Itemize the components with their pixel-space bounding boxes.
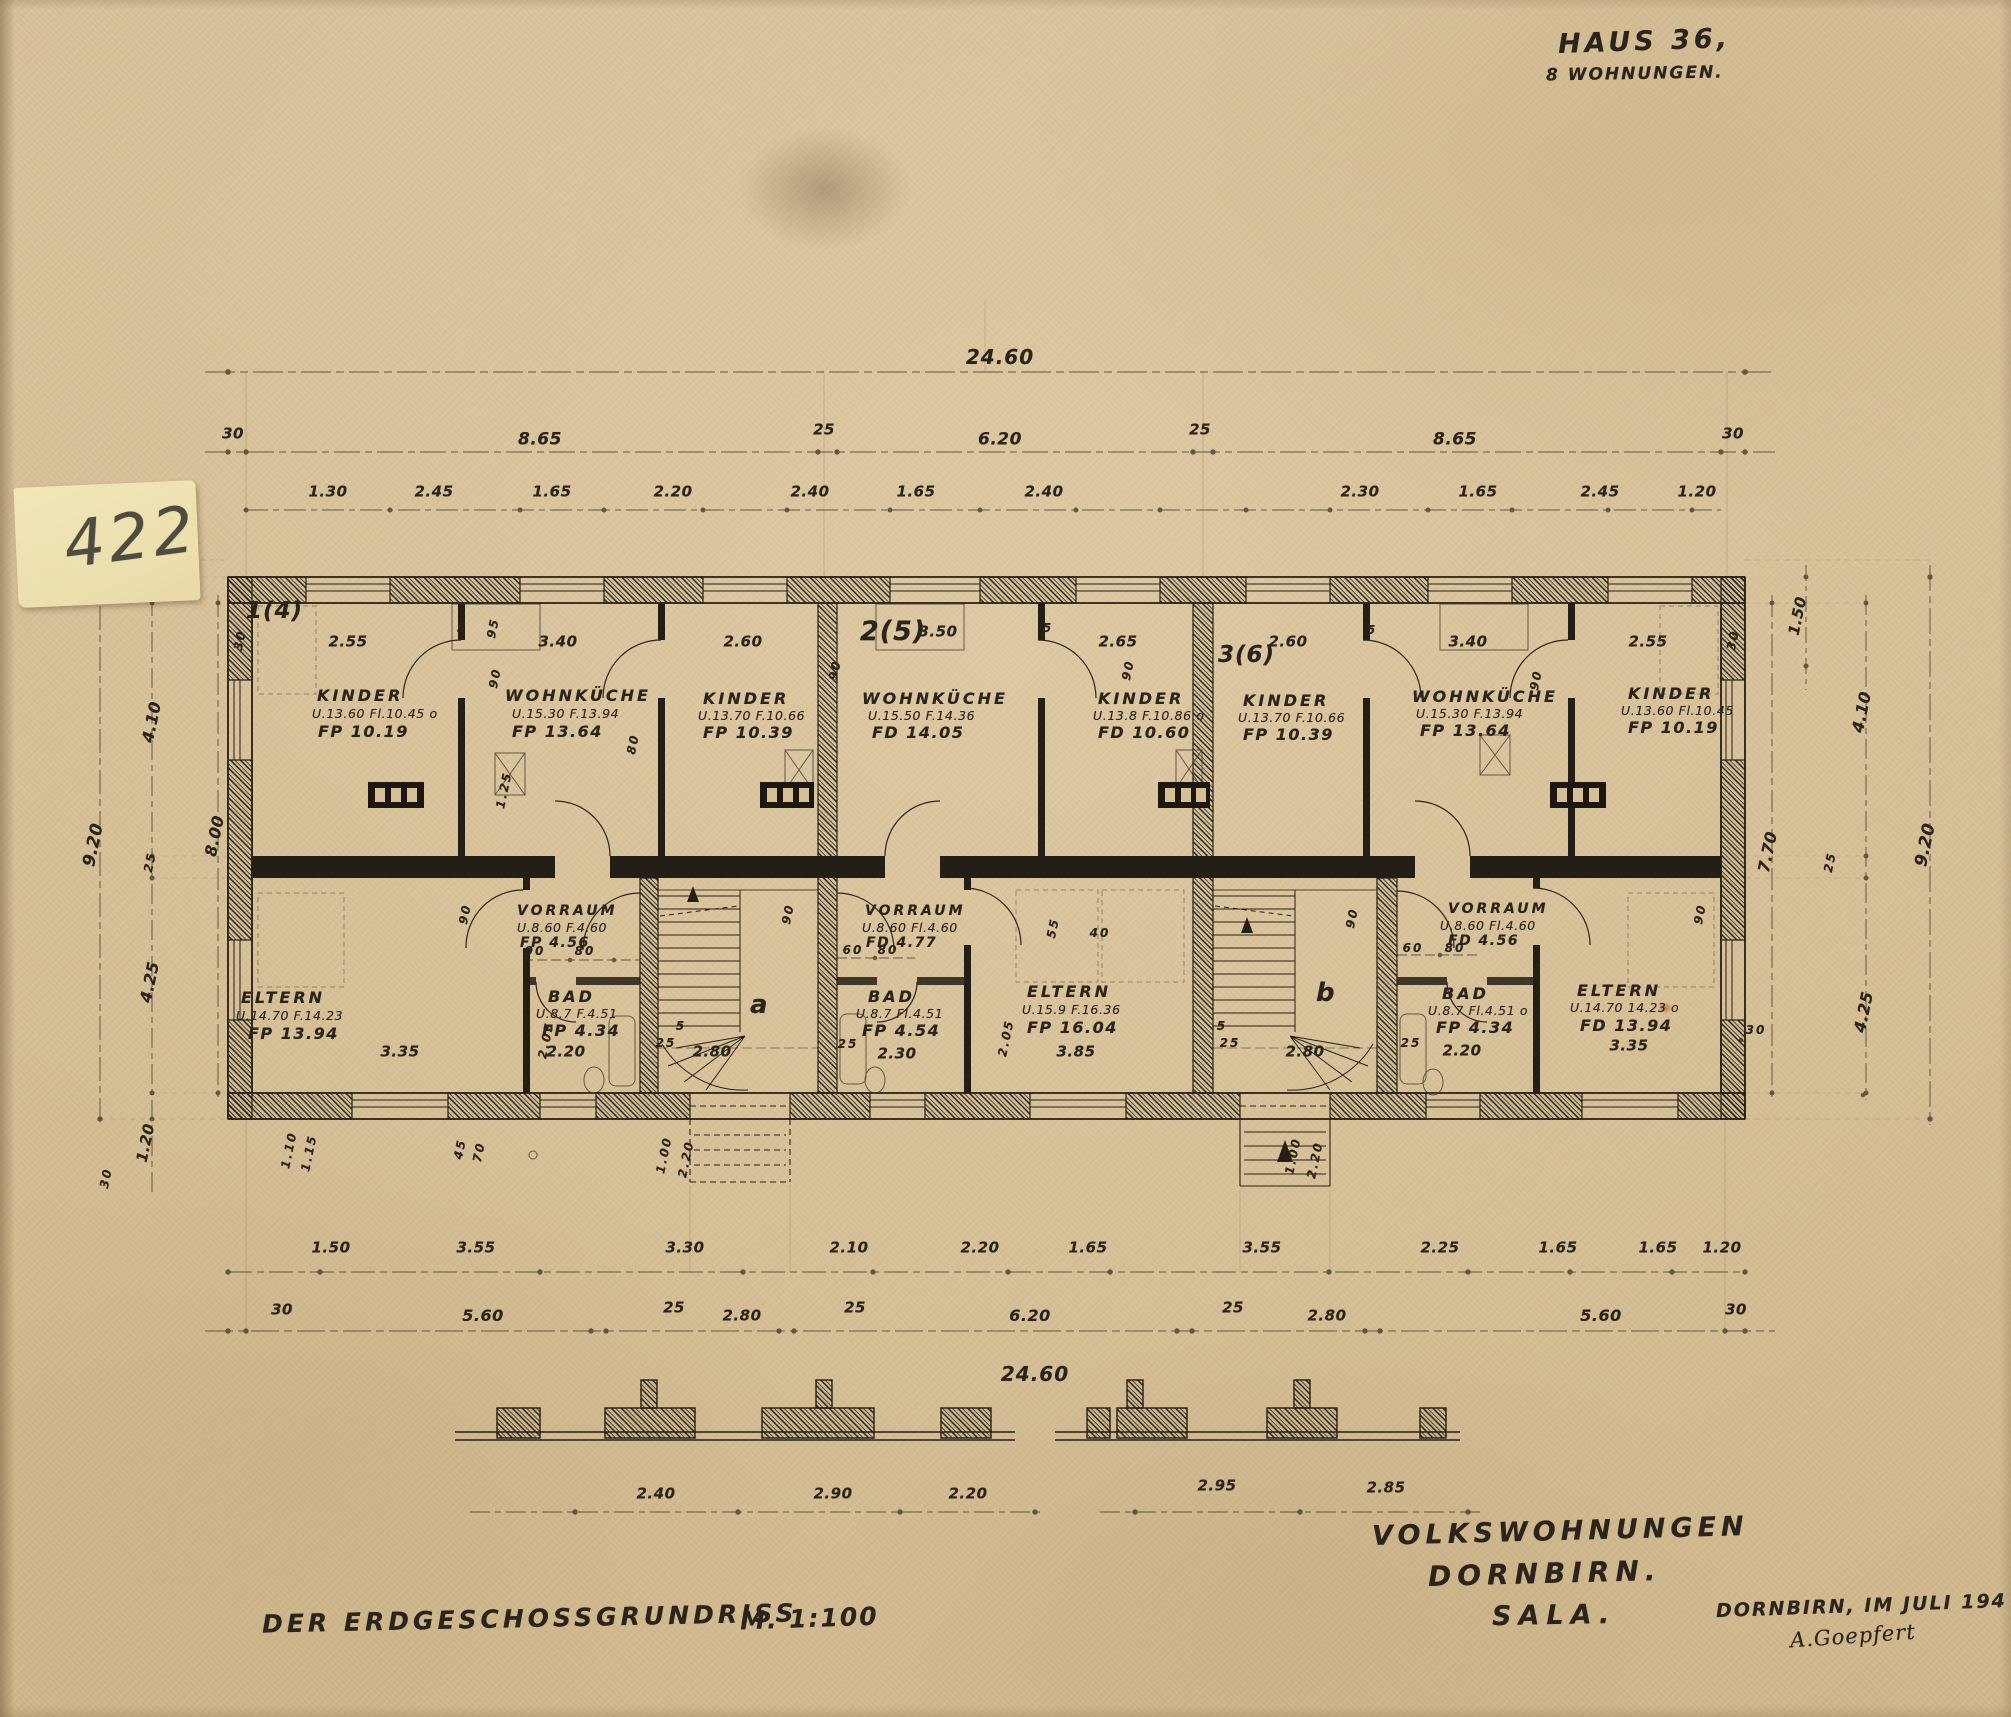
dim-label: 30 <box>271 1303 293 1318</box>
dim-label: 1.30 <box>308 485 347 500</box>
room-area: U.13.70 F.10.66 <box>698 710 805 723</box>
sticky-note-number: 422 <box>60 493 203 584</box>
room-name: KINDER <box>1628 686 1714 702</box>
dim-profile: 2.85 <box>1366 1481 1405 1496</box>
room-area: U.8.7 Fl.4.51 o <box>1428 1005 1528 1018</box>
dim-label: 8.65 <box>1433 432 1477 449</box>
dim-small: 5 <box>1217 1020 1227 1032</box>
dim-label: 2.20 <box>653 485 692 500</box>
dim-small: 80 <box>878 944 899 956</box>
dim-label: 1.65 <box>1638 1241 1677 1256</box>
dim-room-width: 2.65 <box>1098 635 1137 650</box>
dim-room-width: 3.40 <box>1448 635 1487 650</box>
dim-profile: 2.90 <box>813 1487 852 1502</box>
dim-small: 80 <box>575 945 596 957</box>
dim-room-width: 2.60 <box>723 635 762 650</box>
dim-label: 2.45 <box>414 485 453 500</box>
dim-label: 25 <box>813 423 835 438</box>
stair-a-up-arrow-icon <box>687 886 699 902</box>
dim-small: 60 <box>1403 942 1424 954</box>
dim-room-width: 2.60 <box>1268 635 1307 650</box>
sticky-note: 422 <box>13 480 200 608</box>
stairwell-a-label: a <box>750 992 770 1018</box>
room-area: U.15.30 F.13.94 <box>1416 708 1523 721</box>
room-name: ELTERN <box>241 990 325 1006</box>
room-area: U.13.60 Fl.10.45 o <box>312 708 438 721</box>
room-name: VORRAUM <box>865 904 966 918</box>
dim-profile: 2.40 <box>636 1487 675 1502</box>
dim-label: 1.65 <box>1538 1241 1577 1256</box>
room-name: KINDER <box>703 691 789 707</box>
room-area: U.8.60 Fl.4.60 <box>1440 920 1536 933</box>
project-city: DORNBIRN. <box>1428 1557 1662 1591</box>
room-fp: FP 13.94 <box>248 1026 339 1042</box>
room-area: U.8.60 Fl.4.60 <box>862 922 958 935</box>
room-name: BAD <box>868 989 915 1005</box>
dim-label: 25 <box>1222 1301 1244 1316</box>
dim-room-width: 3.35 <box>380 1045 419 1060</box>
stair-b-up-arrow-icon <box>1241 917 1253 933</box>
dim-room-width: 2.20 <box>1442 1044 1481 1059</box>
dim-small: 25 <box>1401 1037 1422 1049</box>
dim-room-width: 2.30 <box>877 1047 916 1062</box>
room-fp: FP 10.19 <box>318 724 409 740</box>
room-area: U.8.7 Fl.4.51 <box>856 1008 943 1021</box>
floor-plan-drawing <box>0 0 2011 1717</box>
apartment-label-3: 3(6) <box>1218 644 1275 667</box>
dim-room-width: 2.80 <box>1285 1045 1324 1060</box>
dim-total-top: 24.60 <box>966 347 1034 367</box>
dim-small: 5 <box>676 1020 686 1032</box>
dim-label: 2.10 <box>829 1241 868 1256</box>
dim-label: 3.55 <box>1242 1241 1281 1256</box>
dim-label: 6.20 <box>978 432 1022 449</box>
dim-small: 5 <box>1367 624 1377 636</box>
room-area: U.15.9 F.16.36 <box>1022 1004 1121 1017</box>
dim-label: 25 <box>663 1301 685 1316</box>
room-name: VORRAUM <box>1448 902 1549 916</box>
dim-room-width: 2.55 <box>328 635 367 650</box>
dim-label: 3.55 <box>456 1241 495 1256</box>
dim-label: 8.65 <box>518 432 562 449</box>
room-name: VORRAUM <box>517 904 618 918</box>
dim-room-width: 3.35 <box>1609 1039 1648 1054</box>
room-name: KINDER <box>1243 693 1329 709</box>
room-name: ELTERN <box>1577 983 1661 999</box>
stairwell-b-label: b <box>1316 980 1337 1006</box>
room-area: U.13.70 F.10.66 <box>1238 712 1345 725</box>
dim-room-width: 3.85 <box>1056 1045 1095 1060</box>
dim-label: 6.20 <box>1009 1308 1050 1324</box>
dim-room-width: 2.20 <box>546 1045 585 1060</box>
room-name: KINDER <box>1098 691 1184 707</box>
dim-small: 25 <box>838 1038 859 1050</box>
room-area: U.15.50 F.14.36 <box>868 710 975 723</box>
dim-label: 1.20 <box>1702 1241 1741 1256</box>
dim-label: 1.65 <box>1458 485 1497 500</box>
dim-label: 2.80 <box>1307 1309 1346 1324</box>
room-fp: FP 16.04 <box>1027 1020 1118 1036</box>
dim-small: 40 <box>1090 927 1111 939</box>
room-fp: FP 4.54 <box>862 1023 940 1039</box>
dim-room-width: 2.80 <box>692 1045 731 1060</box>
dim-label: 30 <box>1725 1303 1747 1318</box>
dim-label: 2.20 <box>960 1241 999 1256</box>
dim-small: 25 <box>656 1037 677 1049</box>
room-area: U.8.7 F.4.51 <box>536 1008 618 1021</box>
dim-label: 2.45 <box>1580 485 1619 500</box>
room-area: U.8.60 F.4.60 <box>517 922 607 935</box>
dim-label: 25 <box>1189 423 1211 438</box>
room-fp: FP 4.34 <box>1436 1020 1514 1036</box>
room-name: KINDER <box>317 688 403 704</box>
apartment-label-2: 2(5) <box>860 618 926 645</box>
sheet-subtitle: 8 WOHNUNGEN. <box>1546 64 1724 84</box>
dim-small: 80 <box>1445 942 1466 954</box>
dim-label: 2.30 <box>1340 485 1379 500</box>
dim-label: 2.25 <box>1420 1241 1459 1256</box>
dim-small: 5 <box>1043 622 1053 634</box>
dim-label: 1.50 <box>311 1241 350 1256</box>
room-area: U.13.60 Fl.10.45 <box>1621 705 1734 718</box>
dim-label: 30 <box>1722 427 1744 442</box>
dim-small: 5 <box>457 622 467 634</box>
dim-label: 2.40 <box>1024 485 1063 500</box>
room-name: BAD <box>1442 986 1489 1002</box>
room-name: BAD <box>548 989 595 1005</box>
dim-label: 1.65 <box>532 485 571 500</box>
dim-profile: 2.20 <box>948 1487 987 1502</box>
room-fp: FD 13.94 <box>1580 1018 1672 1034</box>
room-name: WOHNKÜCHE <box>1412 689 1558 705</box>
dim-label: 30 <box>1746 1024 1767 1036</box>
sheet-title: HAUS 36, <box>1558 25 1732 58</box>
room-name: WOHNKÜCHE <box>862 691 1008 707</box>
room-area: U.13.8 F.10.86 o <box>1093 710 1205 723</box>
room-fp: FP 10.19 <box>1628 720 1719 736</box>
room-fp: FD 14.05 <box>872 725 964 741</box>
dim-small: 25 <box>1220 1037 1241 1049</box>
dim-label: 1.65 <box>1068 1241 1107 1256</box>
dim-label: 3.30 <box>665 1241 704 1256</box>
apartment-label-1: 1(4) <box>246 600 303 623</box>
dim-label: 2.40 <box>790 485 829 500</box>
dim-label: 1.20 <box>1677 485 1716 500</box>
room-fp: FP 10.39 <box>703 725 794 741</box>
room-name: WOHNKÜCHE <box>505 688 651 704</box>
room-fp: FD 10.60 <box>1098 725 1190 741</box>
project-area: SALA. <box>1492 1601 1617 1630</box>
dim-room-width: 3.50 <box>918 625 957 640</box>
room-fp: FP 10.39 <box>1243 727 1334 743</box>
room-fp: FP 13.64 <box>512 724 603 740</box>
drawing-scale: M. 1:100 <box>740 1604 879 1634</box>
dim-label: 5.60 <box>1580 1308 1621 1324</box>
scanned-floor-plan-sheet: 422 HAUS 36, 8 WOHNUNGEN. DER ERDGESCHOS… <box>0 0 2011 1717</box>
dim-room-width: 3.40 <box>538 635 577 650</box>
room-fp: FP 13.64 <box>1420 723 1511 739</box>
dim-small: 90 <box>525 945 546 957</box>
dim-label: 1.65 <box>896 485 935 500</box>
room-name: ELTERN <box>1027 984 1111 1000</box>
room-area: U.14.70 14.23 o <box>1570 1002 1679 1015</box>
dim-room-width: 2.55 <box>1628 635 1667 650</box>
dim-label: 2.80 <box>722 1309 761 1324</box>
dim-label: 25 <box>844 1301 866 1316</box>
dim-total-bottom: 24.60 <box>1001 1364 1069 1384</box>
dim-small: 60 <box>843 944 864 956</box>
room-area: U.14.70 F.14.23 <box>236 1010 343 1023</box>
dim-profile: 2.95 <box>1197 1479 1236 1494</box>
dim-label: 30 <box>222 427 244 442</box>
room-area: U.15.30 F.13.94 <box>512 708 619 721</box>
dim-label: 5.60 <box>462 1308 503 1324</box>
